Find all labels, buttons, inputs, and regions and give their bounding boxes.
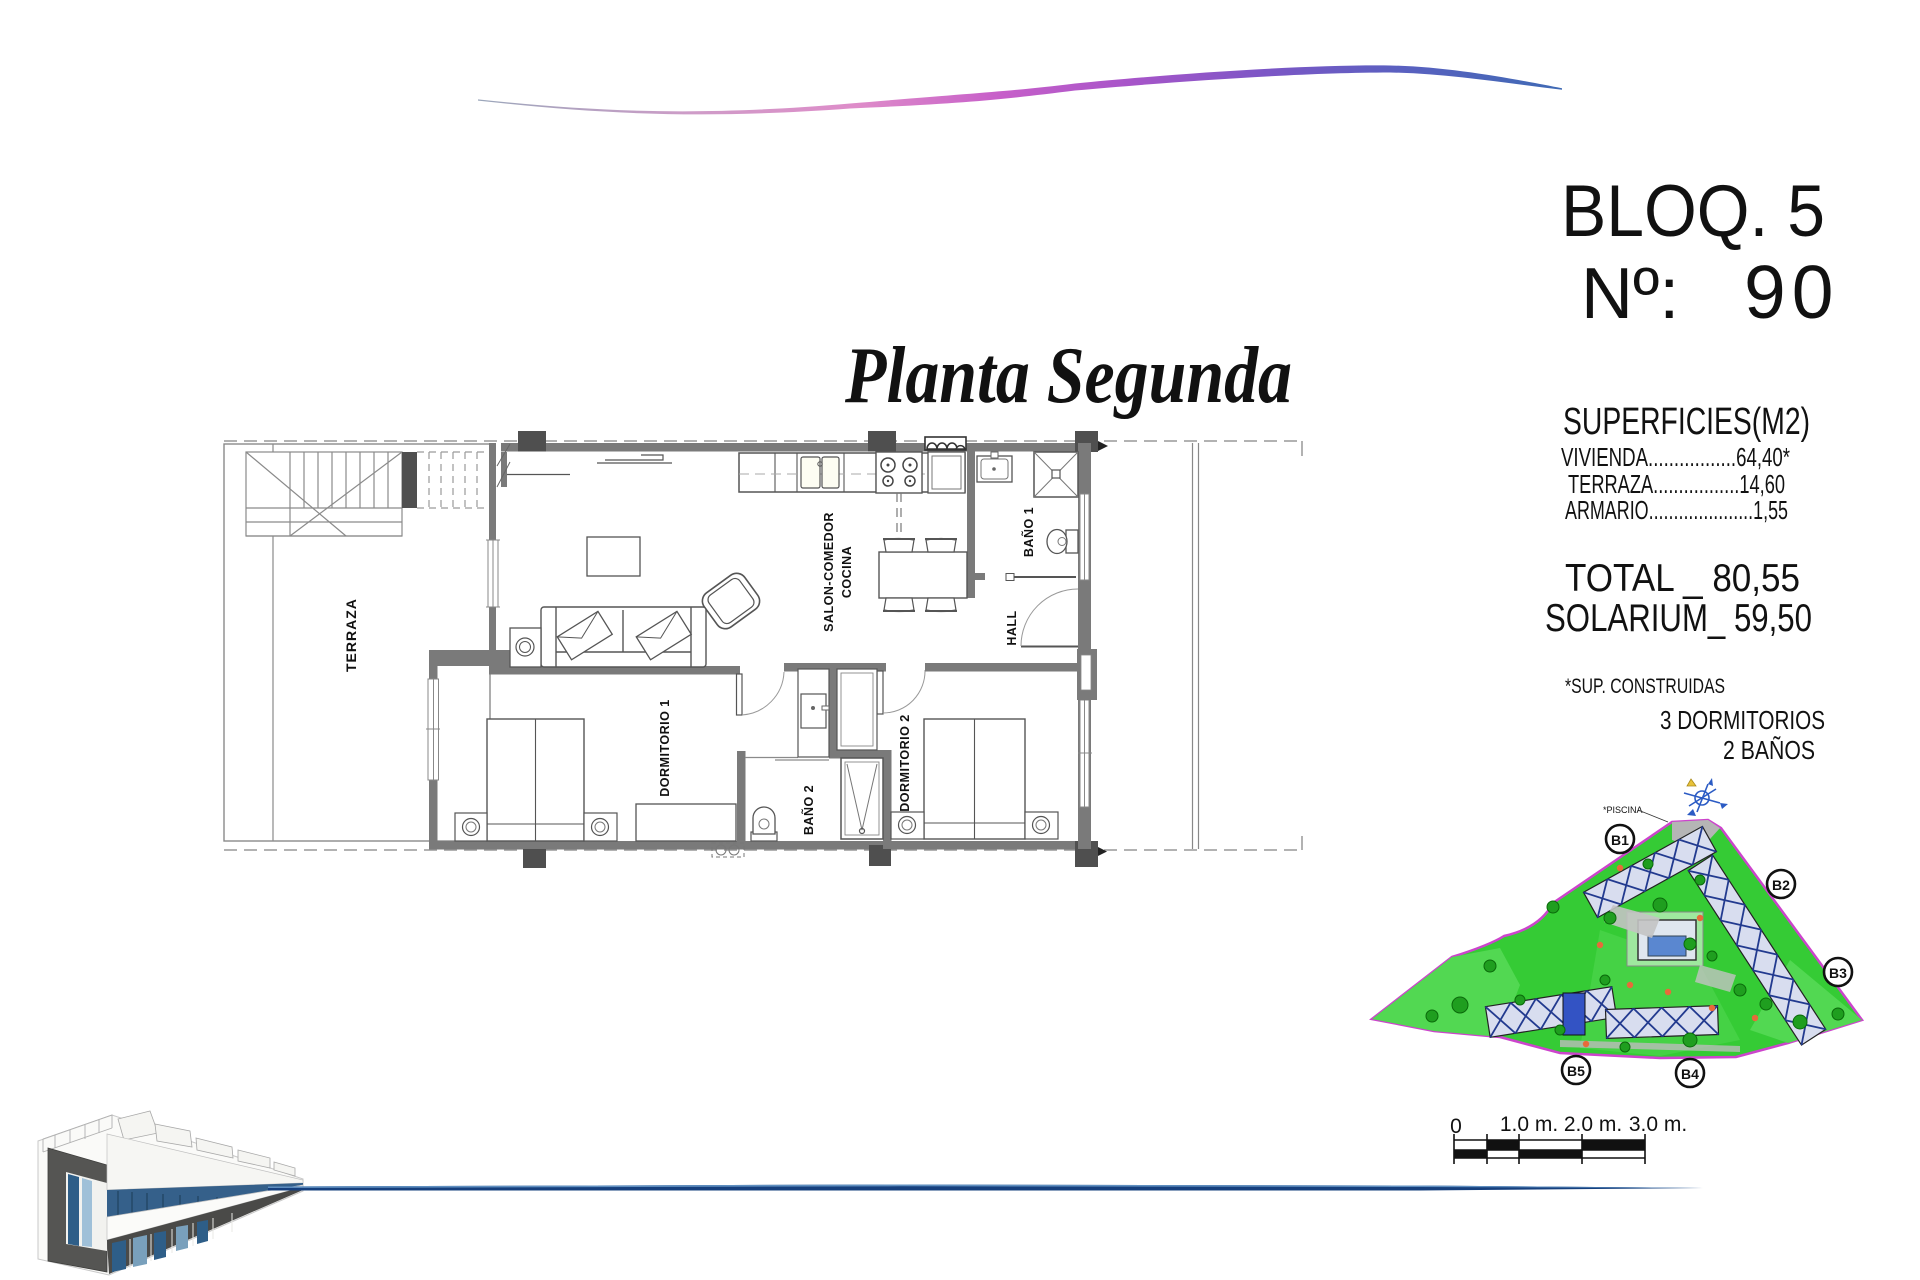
svg-text:B2: B2 xyxy=(1772,877,1790,893)
svg-text:2.0 m.: 2.0 m. xyxy=(1564,1113,1622,1136)
svg-text:DORMITORIO 2: DORMITORIO 2 xyxy=(898,714,912,811)
svg-text:TOTAL _ 80,55: TOTAL _ 80,55 xyxy=(1565,557,1800,600)
svg-text:B1: B1 xyxy=(1611,832,1629,848)
svg-text:ARMARIO.....................1,: ARMARIO.....................1,55 xyxy=(1565,495,1788,525)
svg-text:2 BAÑOS: 2 BAÑOS xyxy=(1723,735,1815,765)
svg-text:3.0 m.: 3.0 m. xyxy=(1629,1113,1687,1136)
svg-text:COCINA: COCINA xyxy=(840,546,854,598)
svg-text:Nº:: Nº: xyxy=(1581,254,1679,334)
svg-text:VIVIENDA.................64,40: VIVIENDA.................64,40* xyxy=(1561,442,1790,472)
svg-text:B3: B3 xyxy=(1829,965,1847,981)
svg-text:1.0 m.: 1.0 m. xyxy=(1500,1113,1558,1136)
svg-text:90: 90 xyxy=(1744,250,1839,334)
svg-text:0: 0 xyxy=(1450,1115,1462,1138)
svg-text:3 DORMITORIOS: 3 DORMITORIOS xyxy=(1660,705,1825,735)
svg-text:DORMITORIO 1: DORMITORIO 1 xyxy=(658,699,672,796)
svg-text:SALON-COMEDOR: SALON-COMEDOR xyxy=(822,512,836,632)
svg-text:TERRAZA: TERRAZA xyxy=(343,598,359,672)
svg-text:SOLARIUM_ 59,50: SOLARIUM_ 59,50 xyxy=(1545,597,1812,640)
svg-text:B4: B4 xyxy=(1681,1066,1699,1082)
svg-text:Planta Segunda: Planta Segunda xyxy=(844,332,1292,420)
svg-text:*PISCINA: *PISCINA xyxy=(1603,805,1643,815)
svg-text:SUPERFICIES(M2): SUPERFICIES(M2) xyxy=(1563,401,1810,443)
svg-text:BAÑO 1: BAÑO 1 xyxy=(1021,507,1036,557)
svg-text:BAÑO 2: BAÑO 2 xyxy=(801,785,816,835)
svg-text:BLOQ. 5: BLOQ. 5 xyxy=(1561,171,1825,252)
svg-text:B5: B5 xyxy=(1567,1063,1585,1079)
svg-text:*SUP. CONSTRUIDAS: *SUP. CONSTRUIDAS xyxy=(1565,675,1725,698)
svg-text:HALL: HALL xyxy=(1005,610,1019,645)
